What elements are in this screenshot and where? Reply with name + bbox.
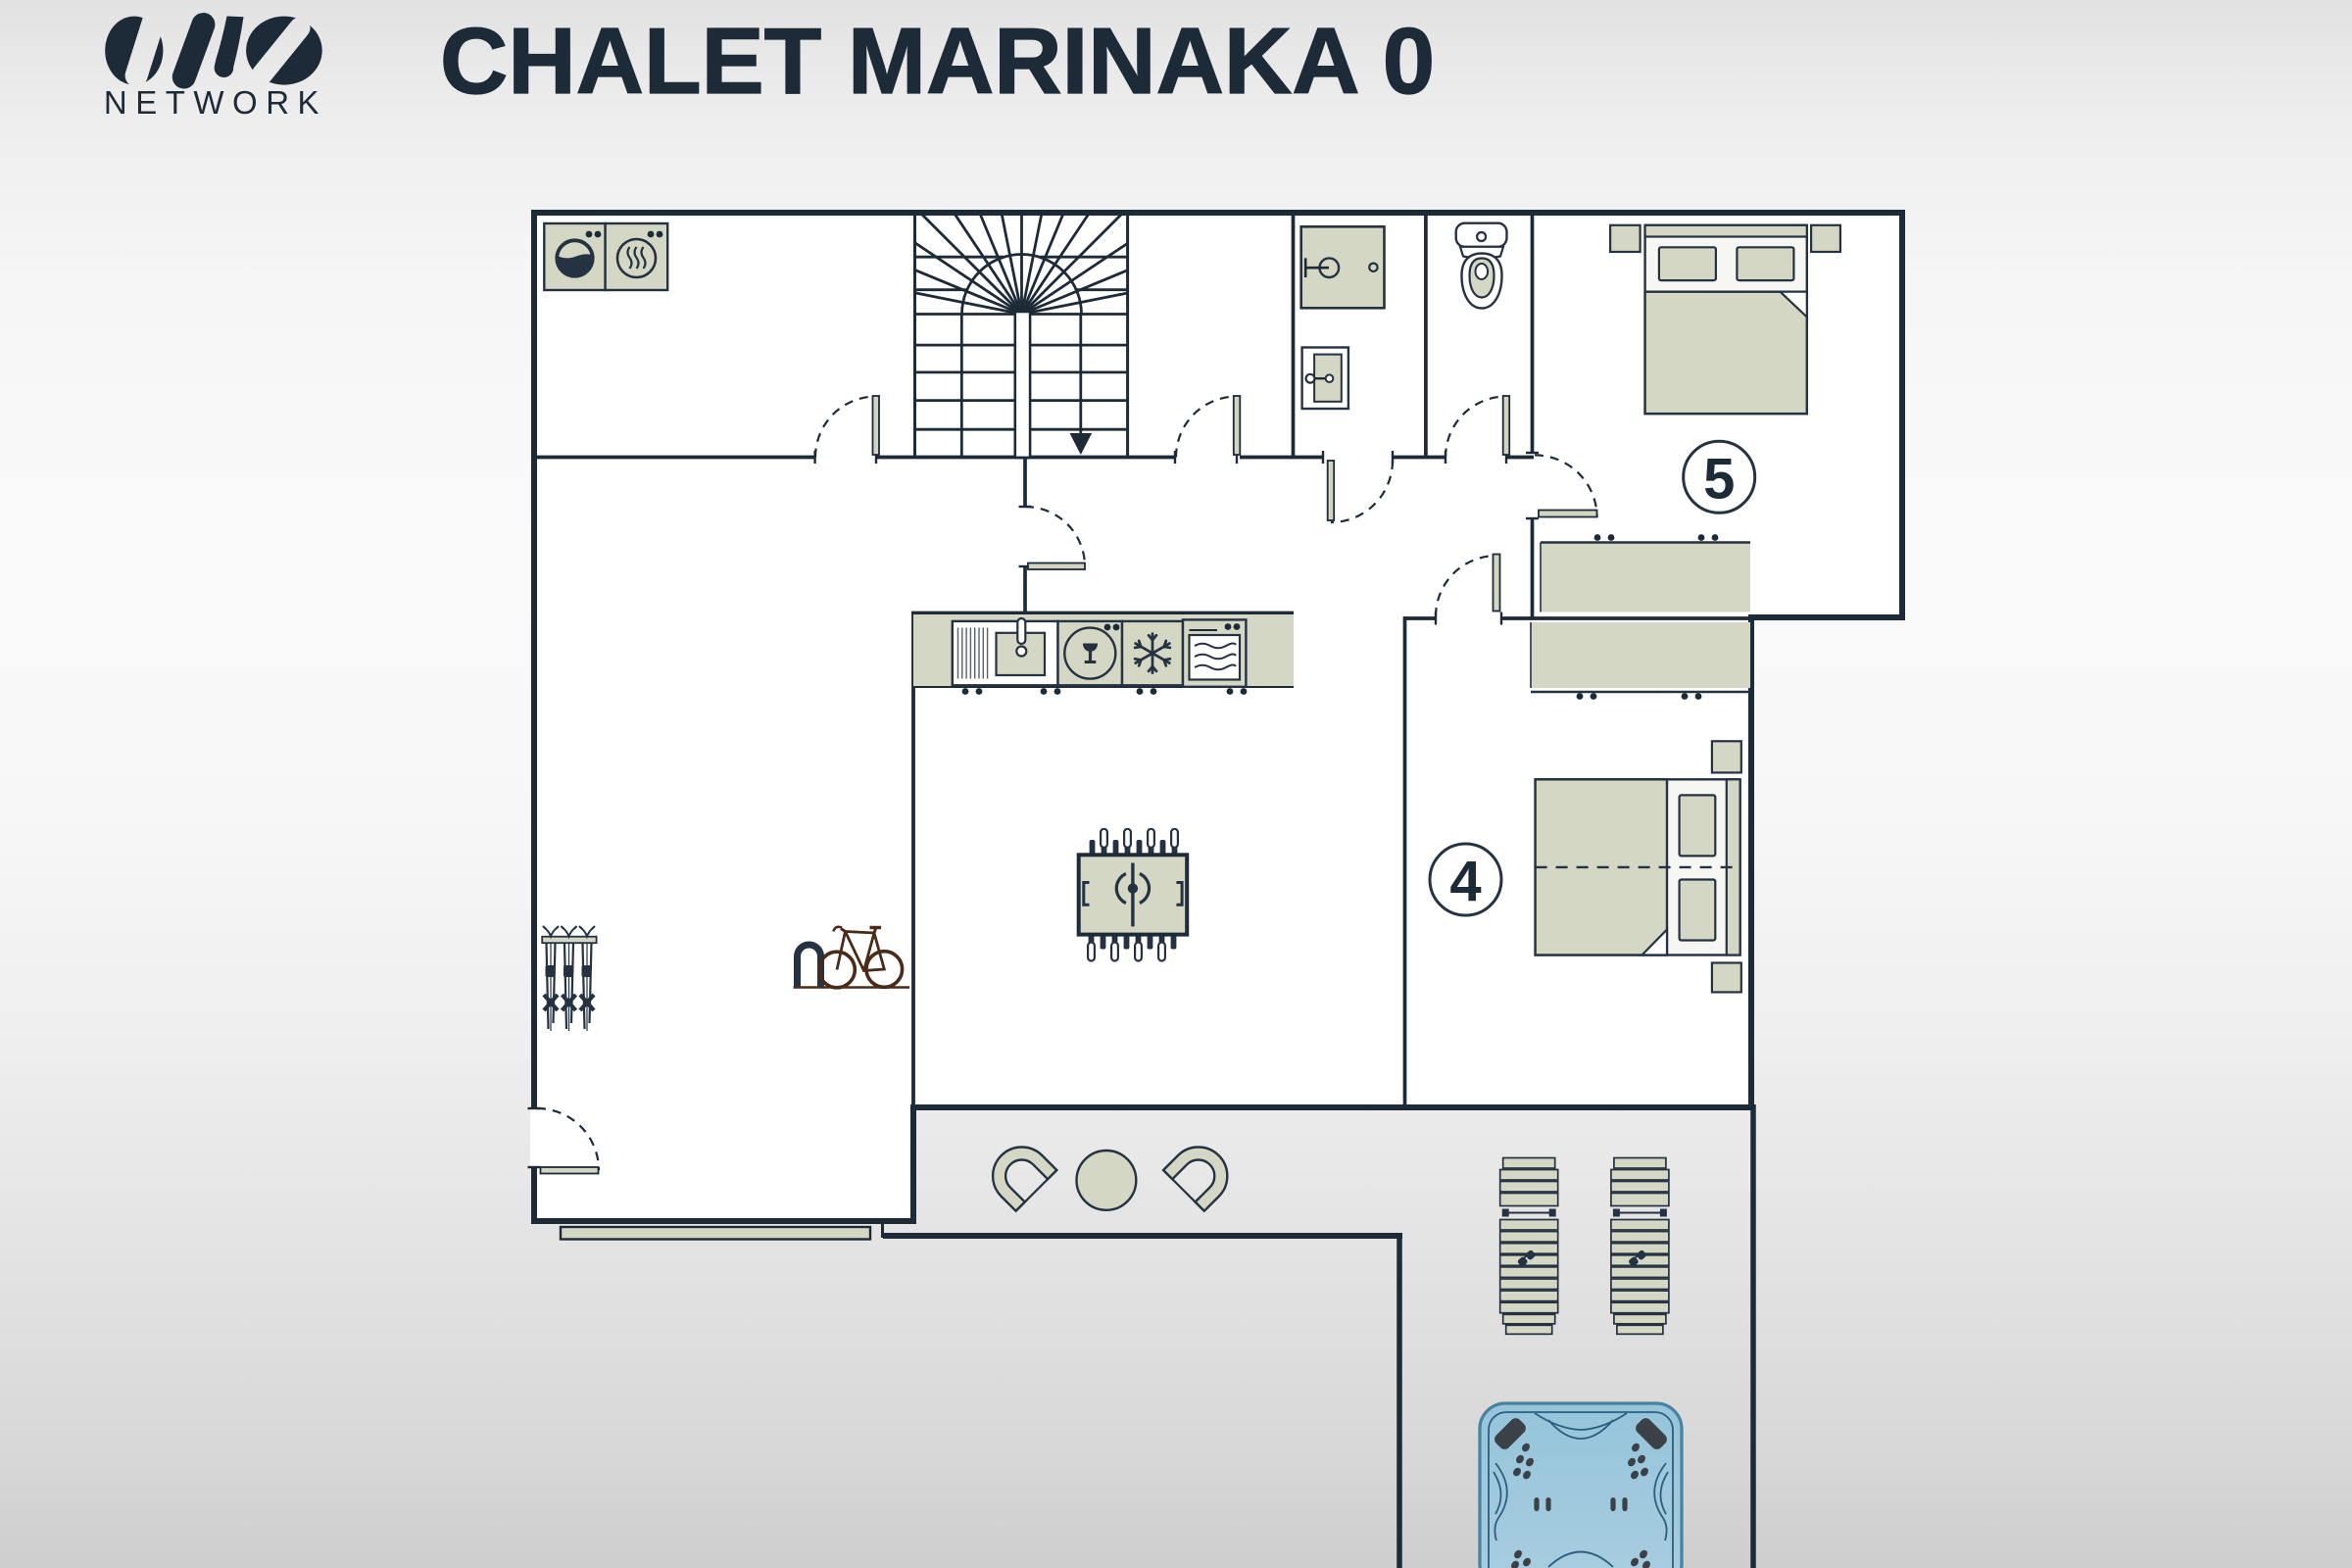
svg-text:5: 5 <box>1703 448 1735 512</box>
svg-text:4: 4 <box>1449 850 1481 913</box>
